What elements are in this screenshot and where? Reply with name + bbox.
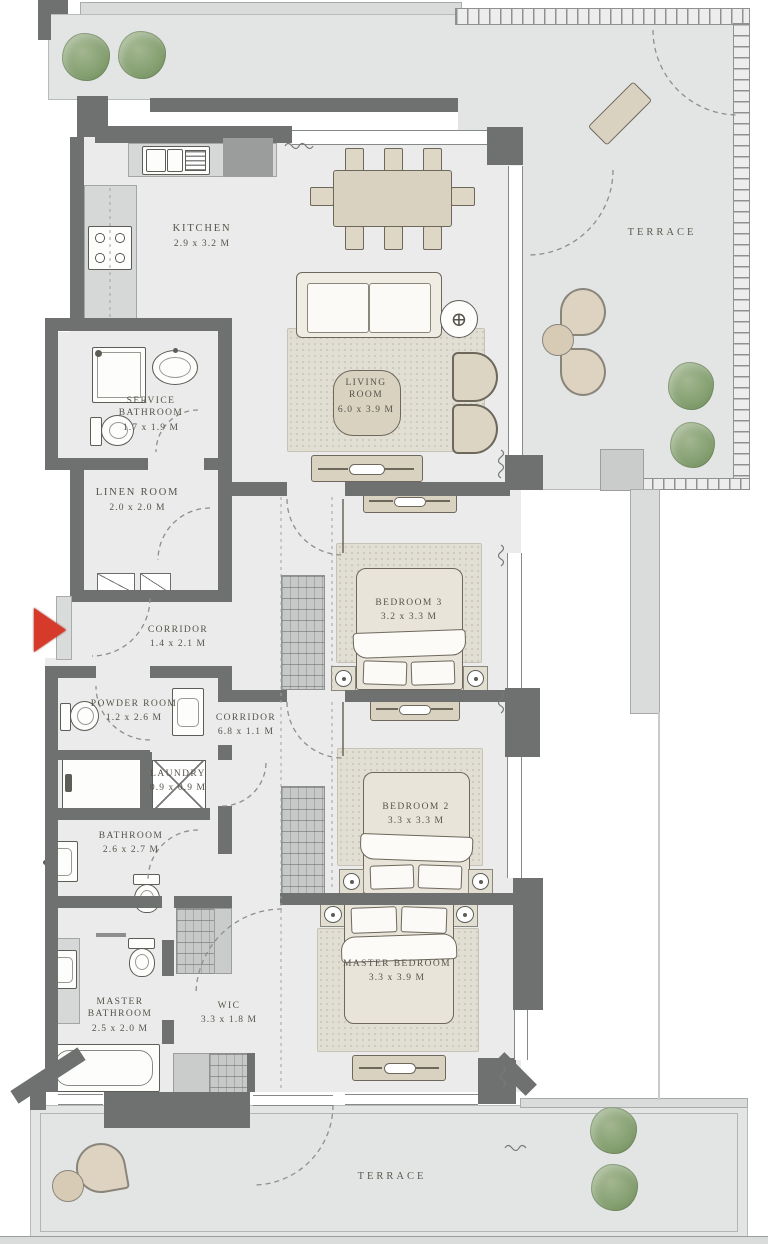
bedroom3-bed xyxy=(356,568,463,690)
dresser-handle xyxy=(394,497,426,507)
wall xyxy=(45,458,148,470)
room-dims: 3.3 x 3.9 M xyxy=(342,972,452,984)
outer-pillar xyxy=(630,489,660,714)
bench-line xyxy=(416,1067,439,1069)
wall xyxy=(218,806,232,854)
wall-column xyxy=(223,138,273,177)
wall xyxy=(218,330,232,458)
room-label-corridor-1: CORRIDOR 1.4 x 2.1 M xyxy=(118,624,238,651)
room-label-terrace-bottom: TERRACE xyxy=(330,1170,454,1184)
faucet-icon xyxy=(173,348,178,353)
window-living-east xyxy=(508,166,523,455)
console-line xyxy=(318,468,348,470)
window-master xyxy=(514,1010,528,1060)
wall-bottom-thick xyxy=(104,1092,250,1128)
dresser-line xyxy=(376,708,398,710)
wall xyxy=(45,896,162,908)
sink-bowl xyxy=(159,357,191,378)
nightstand xyxy=(463,666,488,691)
dresser-line xyxy=(369,500,393,502)
entry-arrow-icon xyxy=(34,608,66,652)
wall-corner xyxy=(487,127,523,165)
room-label-linen-room: LINEN ROOM 2.0 x 2.0 M xyxy=(85,486,190,514)
room-name: CORRIDOR xyxy=(118,624,238,636)
kitchen-sink-basin-left xyxy=(146,149,166,172)
lamp-icon xyxy=(324,906,342,923)
dresser-line xyxy=(431,708,453,710)
toilet-seat xyxy=(135,954,149,970)
wic-wardrobe-top xyxy=(176,908,216,974)
tv-console xyxy=(311,455,423,482)
room-dims: 3.3 x 3.3 M xyxy=(352,815,480,827)
towel-bar xyxy=(96,933,126,937)
dining-chair xyxy=(345,148,364,172)
wall-bedroom3-north xyxy=(232,482,287,496)
wall xyxy=(58,750,150,760)
side-table: ⊕ xyxy=(440,300,478,338)
wall-master-north xyxy=(280,893,513,905)
bed-pillow xyxy=(401,906,448,934)
plant xyxy=(590,1107,637,1154)
room-name: KITCHEN xyxy=(142,222,262,236)
room-name: BEDROOM 2 xyxy=(352,801,480,813)
railing-top xyxy=(455,8,750,25)
room-label-bathroom: BATHROOM 2.6 x 2.7 M xyxy=(66,830,196,857)
wic-unit-bottom xyxy=(173,1053,211,1093)
room-label-laundry: LAUNDRY 0.9 x 0.9 M xyxy=(123,768,233,795)
room-dims: 2.0 x 2.0 M xyxy=(85,502,190,514)
room-label-master-bedroom: MASTER BEDROOM 3.3 x 3.9 M xyxy=(342,958,452,985)
dining-chair xyxy=(345,226,364,250)
railing-right xyxy=(733,23,750,489)
wall xyxy=(70,590,232,602)
room-name: POWDER ROOM xyxy=(90,698,178,710)
room-label-corridor-2: CORRIDOR 6.8 x 1.1 M xyxy=(190,712,302,739)
bedroom2-wardrobe xyxy=(281,786,325,895)
wall xyxy=(218,745,232,760)
room-dims: 3.3 x 1.8 M xyxy=(174,1014,284,1026)
wall xyxy=(45,808,210,820)
bedroom3-wardrobe xyxy=(281,575,325,690)
dining-chair xyxy=(310,187,334,206)
side-table-crosshair-icon: ⊕ xyxy=(451,307,468,332)
bed-blanket xyxy=(353,629,467,659)
room-name: LAUNDRY xyxy=(123,768,233,780)
nightstand xyxy=(331,666,356,691)
dining-chair xyxy=(384,148,403,172)
dining-chair xyxy=(423,226,442,250)
lamp-icon xyxy=(472,873,489,890)
room-dims: 1.7 x 1.9 M xyxy=(95,422,207,434)
room-dims: 3.2 x 3.3 M xyxy=(345,611,473,623)
lamp-icon xyxy=(456,906,474,923)
plant xyxy=(668,362,714,410)
bed-pillow xyxy=(411,660,456,686)
wall xyxy=(38,0,51,40)
wall-linen-west xyxy=(70,470,84,600)
toilet-bowl xyxy=(129,948,155,977)
sofa xyxy=(296,272,442,338)
wall-pillar-block xyxy=(600,449,644,491)
plant xyxy=(591,1164,638,1211)
room-dims: 1.2 x 2.6 M xyxy=(90,712,178,724)
bed-pillow xyxy=(351,906,398,934)
terrace-door-leaf xyxy=(253,1095,333,1106)
room-label-bedroom-3: BEDROOM 3 3.2 x 3.3 M xyxy=(345,597,473,624)
shower-head-icon xyxy=(95,350,102,357)
dresser-line xyxy=(426,500,450,502)
lamp-icon xyxy=(335,670,352,687)
room-name: WIC xyxy=(174,1000,284,1012)
room-label-living: LIVING ROOM 6.0 x 3.9 M xyxy=(331,377,401,416)
lamp-icon xyxy=(343,873,360,890)
dining-chair xyxy=(384,226,403,250)
terrace-chair xyxy=(560,348,606,396)
sink xyxy=(152,350,198,385)
wall-bedroom3-north xyxy=(345,482,510,496)
nightstand xyxy=(339,869,364,894)
wall xyxy=(30,1082,46,1110)
wall-bedroom2-north xyxy=(345,690,510,702)
bed-pillow xyxy=(370,864,415,890)
wall xyxy=(204,458,232,470)
wall-block xyxy=(505,688,540,757)
wall xyxy=(218,678,232,702)
nightstand xyxy=(320,902,346,927)
room-label-service-bathroom: SERVICE BATHROOM 1.7 x 1.9 M xyxy=(95,395,207,434)
dining-chair xyxy=(451,187,475,206)
shower-tray xyxy=(97,352,141,398)
room-name: BEDROOM 3 xyxy=(345,597,473,609)
bedroom2-bed xyxy=(363,772,470,894)
armchair xyxy=(452,404,498,454)
master-bench xyxy=(352,1055,446,1081)
window-bedroom2 xyxy=(507,757,522,878)
floor-plan: ⊕ xyxy=(0,0,768,1244)
wall-masterbath-east xyxy=(162,940,174,976)
wall-master-east xyxy=(513,878,543,1010)
room-name: MASTER BATHROOM xyxy=(64,996,176,1021)
bed-pillow xyxy=(363,660,408,686)
kitchen-stove xyxy=(88,226,132,270)
dining-table xyxy=(333,170,452,227)
plant xyxy=(118,31,166,79)
room-name: LIVING ROOM xyxy=(331,377,401,402)
wall xyxy=(218,898,232,908)
room-name: MASTER BEDROOM xyxy=(342,958,452,970)
wall xyxy=(45,318,232,331)
room-dims: 2.9 x 3.2 M xyxy=(142,238,262,250)
bench-handle xyxy=(384,1063,416,1074)
building-edge-line xyxy=(658,712,660,1100)
room-name: TERRACE xyxy=(600,226,724,240)
bottom-edge-band xyxy=(0,1236,768,1244)
terrace-bottom-top-edge xyxy=(520,1098,748,1108)
wall-terrace-south xyxy=(150,98,458,112)
room-dims: 1.4 x 2.1 M xyxy=(118,638,238,650)
room-name: BATHROOM xyxy=(66,830,196,842)
terrace-table xyxy=(52,1170,84,1202)
plant xyxy=(62,33,110,81)
sofa-cushion xyxy=(307,283,369,333)
armchair xyxy=(452,352,498,402)
bench-line xyxy=(359,1067,382,1069)
room-label-wic: WIC 3.3 x 1.8 M xyxy=(174,1000,284,1027)
sofa-cushion xyxy=(369,283,431,333)
wall-west xyxy=(45,318,58,470)
room-dims: 6.8 x 1.1 M xyxy=(190,726,302,738)
room-label-powder-room: POWDER ROOM 1.2 x 2.6 M xyxy=(90,698,178,725)
wall-wic-end xyxy=(247,1053,255,1092)
room-name: LINEN ROOM xyxy=(85,486,190,500)
dresser-handle xyxy=(399,705,431,715)
wic-unit-top xyxy=(214,908,232,974)
wall-bedroom2-north xyxy=(232,690,287,702)
room-dims: 6.0 x 3.9 M xyxy=(331,404,401,416)
room-name: SERVICE BATHROOM xyxy=(95,395,207,420)
nightstand xyxy=(468,869,493,894)
plant xyxy=(670,422,715,468)
lamp-icon xyxy=(467,670,484,687)
wall xyxy=(150,666,232,678)
kitchen-drainer xyxy=(185,150,206,171)
wall-kitchen-west xyxy=(70,137,84,327)
room-label-bedroom-2: BEDROOM 2 3.3 x 3.3 M xyxy=(352,801,480,828)
window-bottom xyxy=(58,1094,103,1105)
bed-pillow xyxy=(418,864,463,890)
room-dims: 0.9 x 0.9 M xyxy=(123,782,233,794)
wall-block xyxy=(505,455,543,490)
room-label-terrace-top: TERRACE xyxy=(600,226,724,240)
room-dims: 2.5 x 2.0 M xyxy=(64,1023,176,1035)
console-handle xyxy=(349,464,385,475)
room-name: CORRIDOR xyxy=(190,712,302,724)
window-living-north xyxy=(292,130,487,145)
room-label-kitchen: KITCHEN 2.9 x 3.2 M xyxy=(142,222,262,250)
shower-valve-icon xyxy=(65,774,72,792)
room-name: TERRACE xyxy=(330,1170,454,1184)
nightstand xyxy=(452,902,478,927)
console-line xyxy=(384,468,414,470)
window-bottom xyxy=(345,1094,478,1105)
kitchen-sink-basin-right xyxy=(167,149,183,172)
terrace-table xyxy=(542,324,574,356)
wall-west-lower xyxy=(45,666,58,1092)
wall xyxy=(218,470,232,590)
window-bedroom3 xyxy=(507,553,522,688)
dining-chair xyxy=(423,148,442,172)
wic-wardrobe-bottom xyxy=(209,1053,249,1093)
room-dims: 2.6 x 2.7 M xyxy=(66,844,196,856)
room-label-master-bathroom: MASTER BATHROOM 2.5 x 2.0 M xyxy=(64,996,176,1035)
bed-blanket xyxy=(360,833,474,863)
